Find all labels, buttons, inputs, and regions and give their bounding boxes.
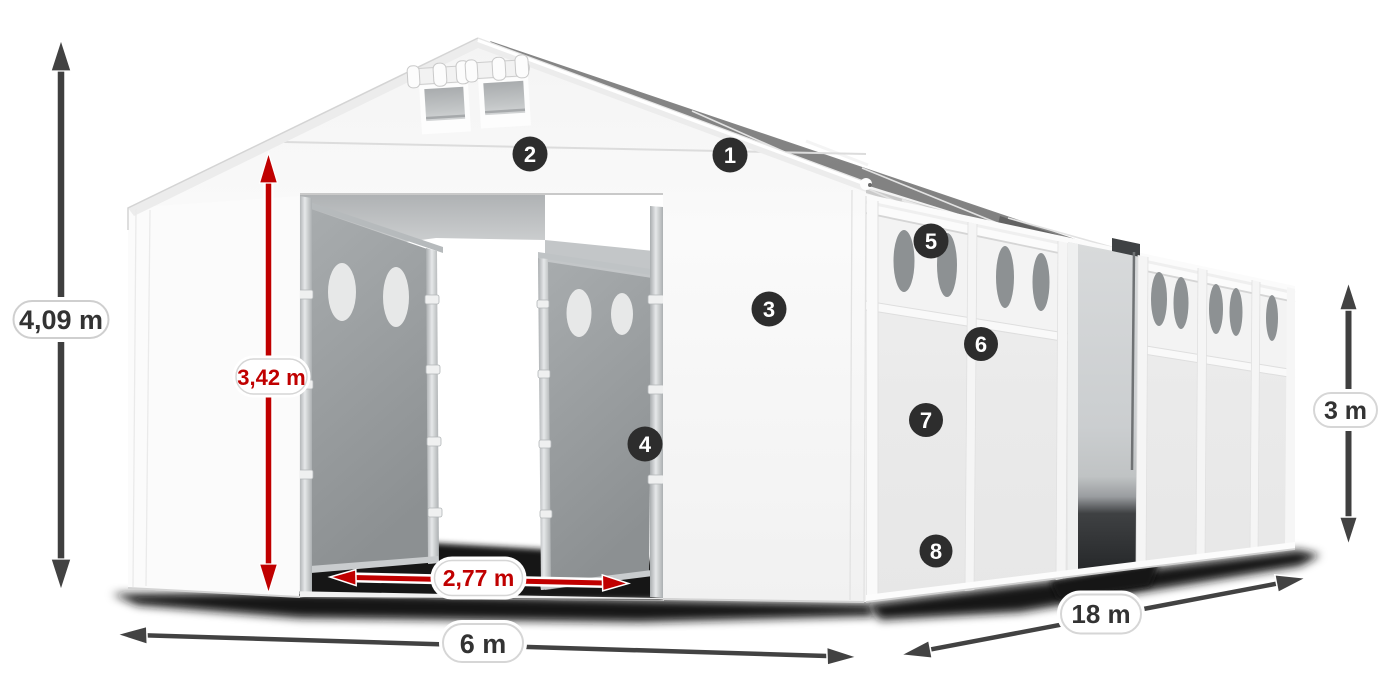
svg-text:4,09 m: 4,09 m [19,305,103,335]
svg-text:3 m: 3 m [1324,397,1367,425]
svg-text:3: 3 [763,297,775,322]
svg-text:3,42 m: 3,42 m [237,365,306,390]
svg-text:2: 2 [524,142,536,167]
svg-text:6 m: 6 m [460,629,507,659]
svg-text:7: 7 [920,408,932,433]
svg-text:8: 8 [930,539,942,564]
svg-text:5: 5 [925,229,937,254]
svg-text:18 m: 18 m [1071,599,1130,629]
svg-text:1: 1 [724,143,736,168]
svg-text:6: 6 [975,332,987,357]
svg-text:4: 4 [639,432,652,457]
svg-text:2,77 m: 2,77 m [443,565,515,591]
